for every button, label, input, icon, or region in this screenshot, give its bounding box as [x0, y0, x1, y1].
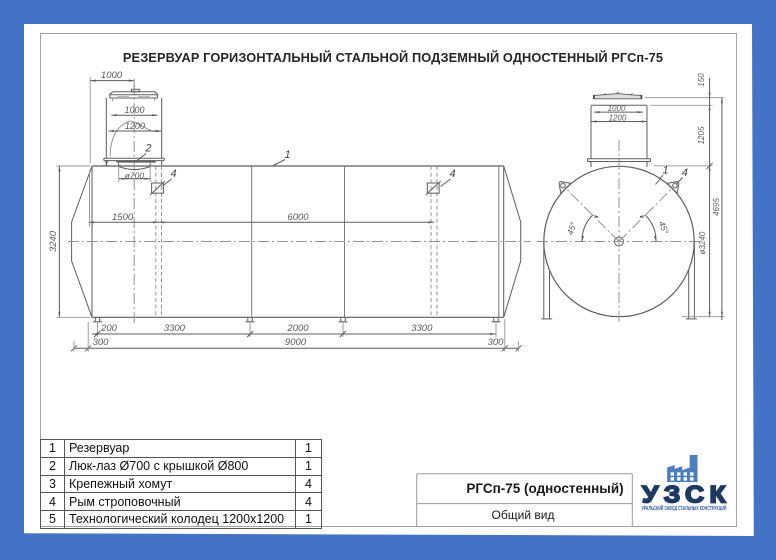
svg-text:2: 2: [144, 143, 151, 155]
svg-text:1205: 1205: [697, 126, 706, 144]
svg-text:4: 4: [682, 167, 688, 179]
svg-text:2000: 2000: [286, 323, 309, 334]
svg-text:6000: 6000: [287, 212, 309, 223]
svg-text:УЗСК: УЗСК: [642, 482, 731, 509]
svg-text:3300: 3300: [164, 323, 186, 334]
svg-text:4: 4: [449, 168, 455, 180]
svg-text:300: 300: [488, 337, 505, 348]
svg-text:3300: 3300: [411, 323, 433, 334]
svg-text:1000: 1000: [101, 70, 123, 81]
svg-text:9000: 9000: [285, 337, 307, 348]
svg-text:1000: 1000: [608, 104, 626, 113]
svg-text:1: 1: [285, 149, 291, 161]
svg-text:УРАЛЬСКИЙ ЗАВОД СТАЛЬНЫХ КОНСТ: УРАЛЬСКИЙ ЗАВОД СТАЛЬНЫХ КОНСТРУКЦИЙ: [642, 504, 727, 512]
svg-text:1500: 1500: [112, 212, 134, 223]
svg-text:1200: 1200: [125, 121, 145, 131]
svg-text:4695: 4695: [712, 198, 721, 216]
svg-text:45°: 45°: [565, 220, 579, 236]
svg-text:150: 150: [697, 73, 706, 87]
svg-text:1: 1: [662, 165, 668, 177]
svg-text:ø3240: ø3240: [698, 231, 707, 254]
svg-text:3240: 3240: [48, 230, 59, 252]
svg-text:45°: 45°: [657, 220, 671, 236]
svg-text:1200: 1200: [609, 113, 627, 122]
svg-text:ø700: ø700: [125, 170, 145, 180]
svg-text:200: 200: [100, 323, 118, 334]
svg-text:1000: 1000: [124, 105, 144, 115]
svg-text:4: 4: [170, 168, 176, 180]
svg-text:300: 300: [93, 337, 110, 348]
